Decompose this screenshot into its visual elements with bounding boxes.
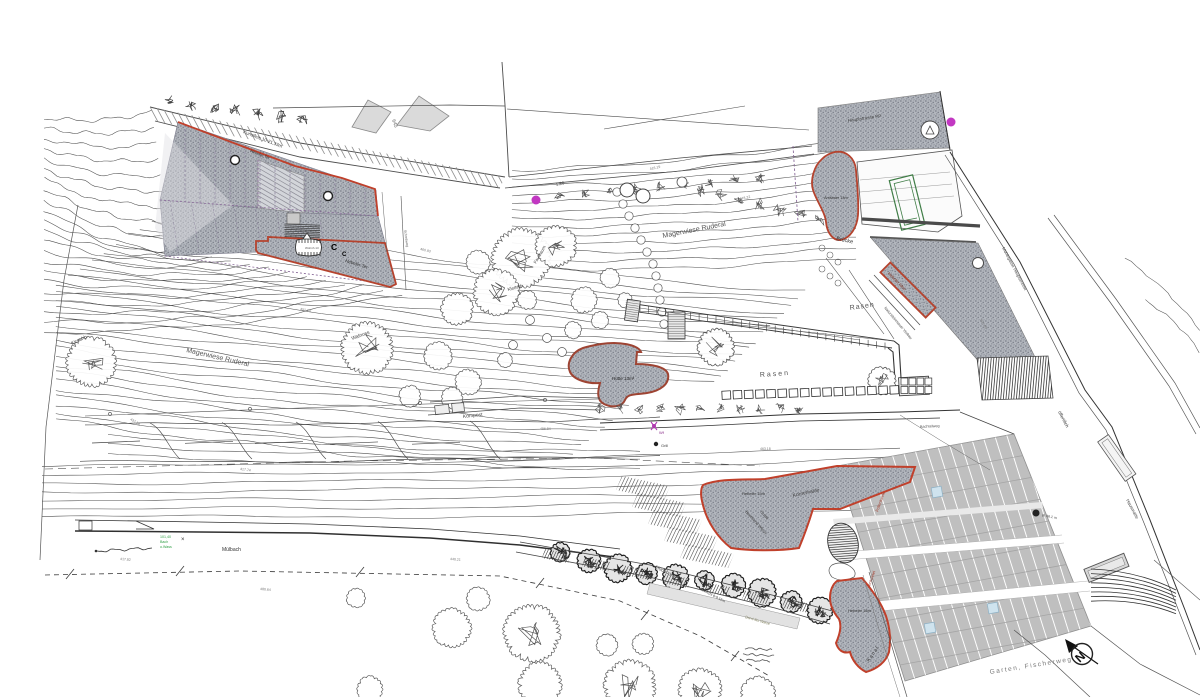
svg-text:o.Wass: o.Wass — [160, 545, 172, 549]
svg-text:456.84: 456.84 — [540, 427, 551, 431]
svg-text:463.18: 463.18 — [760, 447, 771, 451]
svg-text:101,40: 101,40 — [160, 535, 171, 539]
svg-text:C: C — [331, 242, 337, 252]
svg-text:Mülbach: Mülbach — [222, 547, 241, 553]
svg-text:Hebeler 15m: Hebeler 15m — [848, 608, 872, 613]
svg-text:Grill: Grill — [661, 443, 668, 448]
svg-text:Antsbaer 13m: Antsbaer 13m — [824, 196, 848, 200]
svg-text:Hütte 13m²: Hütte 13m² — [612, 376, 635, 381]
svg-text:×: × — [181, 537, 185, 543]
svg-text:Bach: Bach — [160, 540, 168, 544]
svg-text:Hebeler 15m: Hebeler 15m — [742, 491, 766, 496]
svg-text:Wohnh.13: Wohnh.13 — [305, 246, 319, 250]
svg-text:C: C — [342, 252, 347, 258]
